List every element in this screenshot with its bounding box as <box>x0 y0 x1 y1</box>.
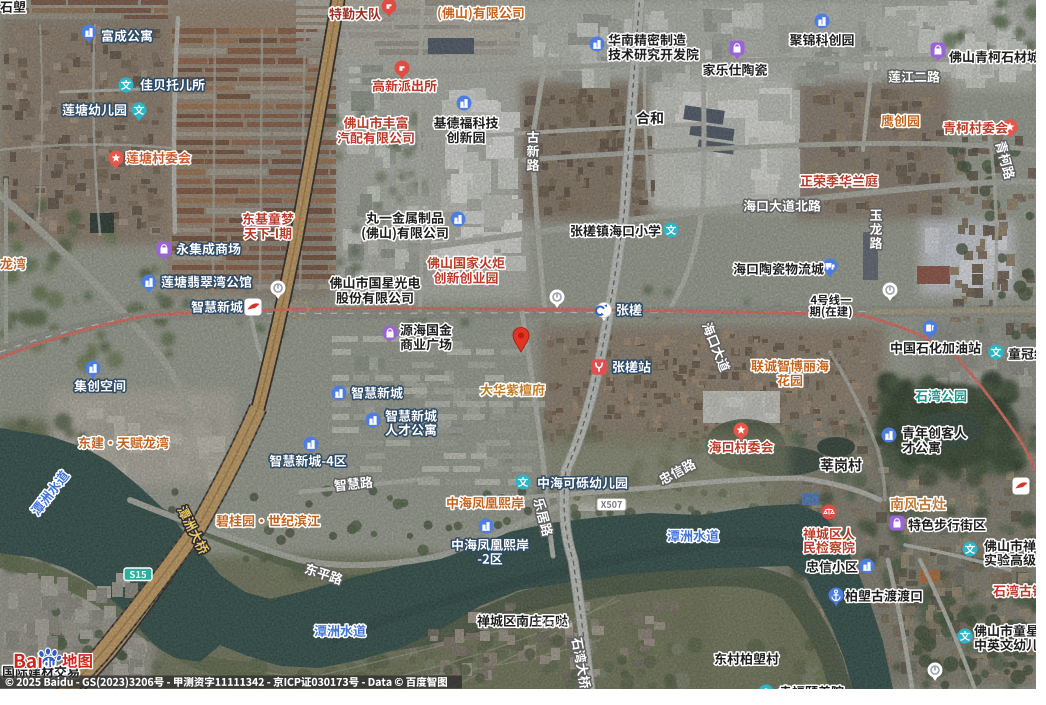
svg-text:©Baidu: ©Baidu <box>536 618 572 630</box>
